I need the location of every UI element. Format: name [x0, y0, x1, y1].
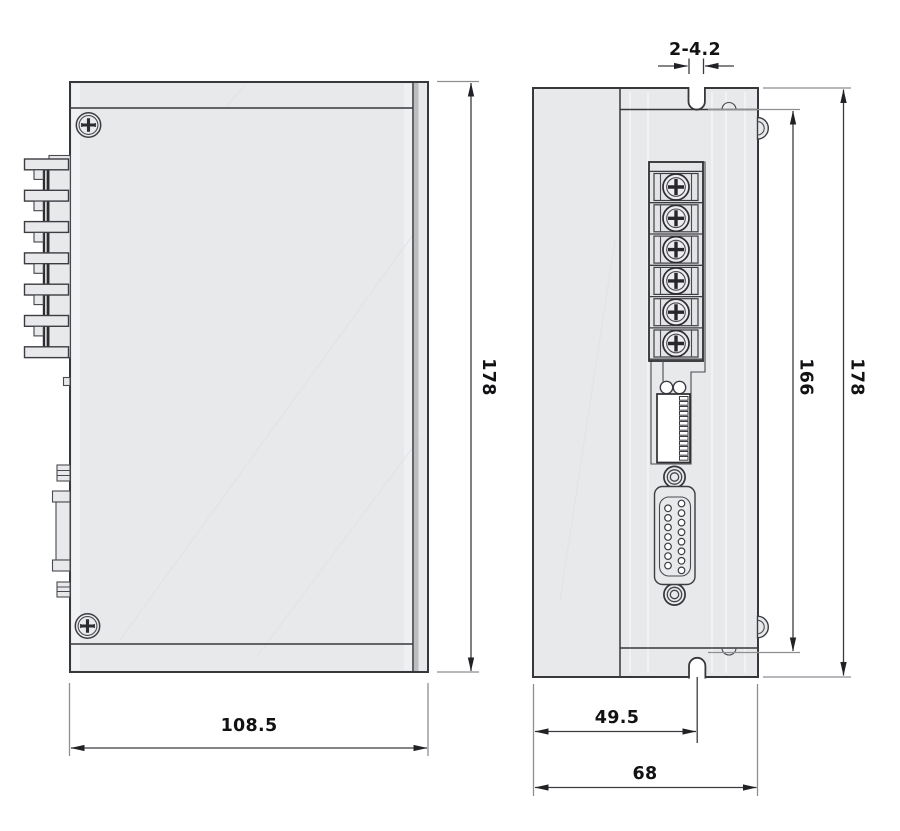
slot-width-label: 2-4.2: [669, 40, 721, 60]
case-screw-top-icon: [76, 113, 100, 137]
slot-offset-dimension: 49.5: [534, 684, 697, 742]
terminal-screw-3-icon: [654, 236, 698, 263]
terminal-screw-2-icon: [654, 205, 698, 232]
slot-offset-label: 49.5: [595, 708, 639, 728]
side-terminal-fins: [25, 156, 71, 358]
terminal-screw-5-icon: [654, 299, 698, 326]
side-view: [25, 82, 429, 672]
case-screw-bottom-icon: [75, 614, 99, 638]
side-edge-pin: [64, 378, 71, 386]
db15-top-standoff: [664, 466, 685, 487]
technical-drawing-sheet: 178 108.5: [0, 0, 900, 831]
db15-bottom-standoff: [664, 584, 685, 605]
terminal-screw-6-icon: [654, 330, 698, 357]
terminal-block: [649, 162, 703, 361]
led-2-icon: [673, 381, 685, 393]
terminal-screw-1-icon: [654, 174, 698, 201]
db-side-bottom-post: [57, 582, 70, 597]
edge-screw-head-bottom: [758, 616, 769, 638]
db15-connector-icon: [655, 466, 696, 605]
dimension-drawing: 178 108.5: [0, 0, 900, 831]
side-height-dimension: 178: [437, 82, 498, 673]
front-width-dimension: 68: [534, 684, 758, 796]
side-width-dimension: 108.5: [70, 683, 429, 756]
front-view: [533, 86, 768, 744]
db-side-top-post: [57, 465, 70, 481]
mount-spacing-label: 166: [796, 358, 816, 395]
led-1-icon: [660, 381, 672, 393]
side-view-body: [70, 82, 428, 672]
terminal-screw-4-icon: [654, 267, 698, 294]
edge-screw-head-top: [758, 118, 769, 140]
db-side-body: [56, 502, 70, 560]
front-view-body: [533, 88, 758, 677]
front-width-label: 68: [633, 764, 658, 784]
side-db-connector: [53, 465, 71, 597]
side-width-label: 108.5: [221, 716, 278, 736]
top-mounting-notch: [689, 86, 705, 110]
dip-switch-icon: [657, 394, 690, 463]
front-height-label: 178: [847, 358, 867, 395]
bottom-mounting-slot: [689, 658, 705, 743]
side-height-label: 178: [478, 358, 498, 395]
slot-width-dimension: 2-4.2: [658, 40, 734, 74]
